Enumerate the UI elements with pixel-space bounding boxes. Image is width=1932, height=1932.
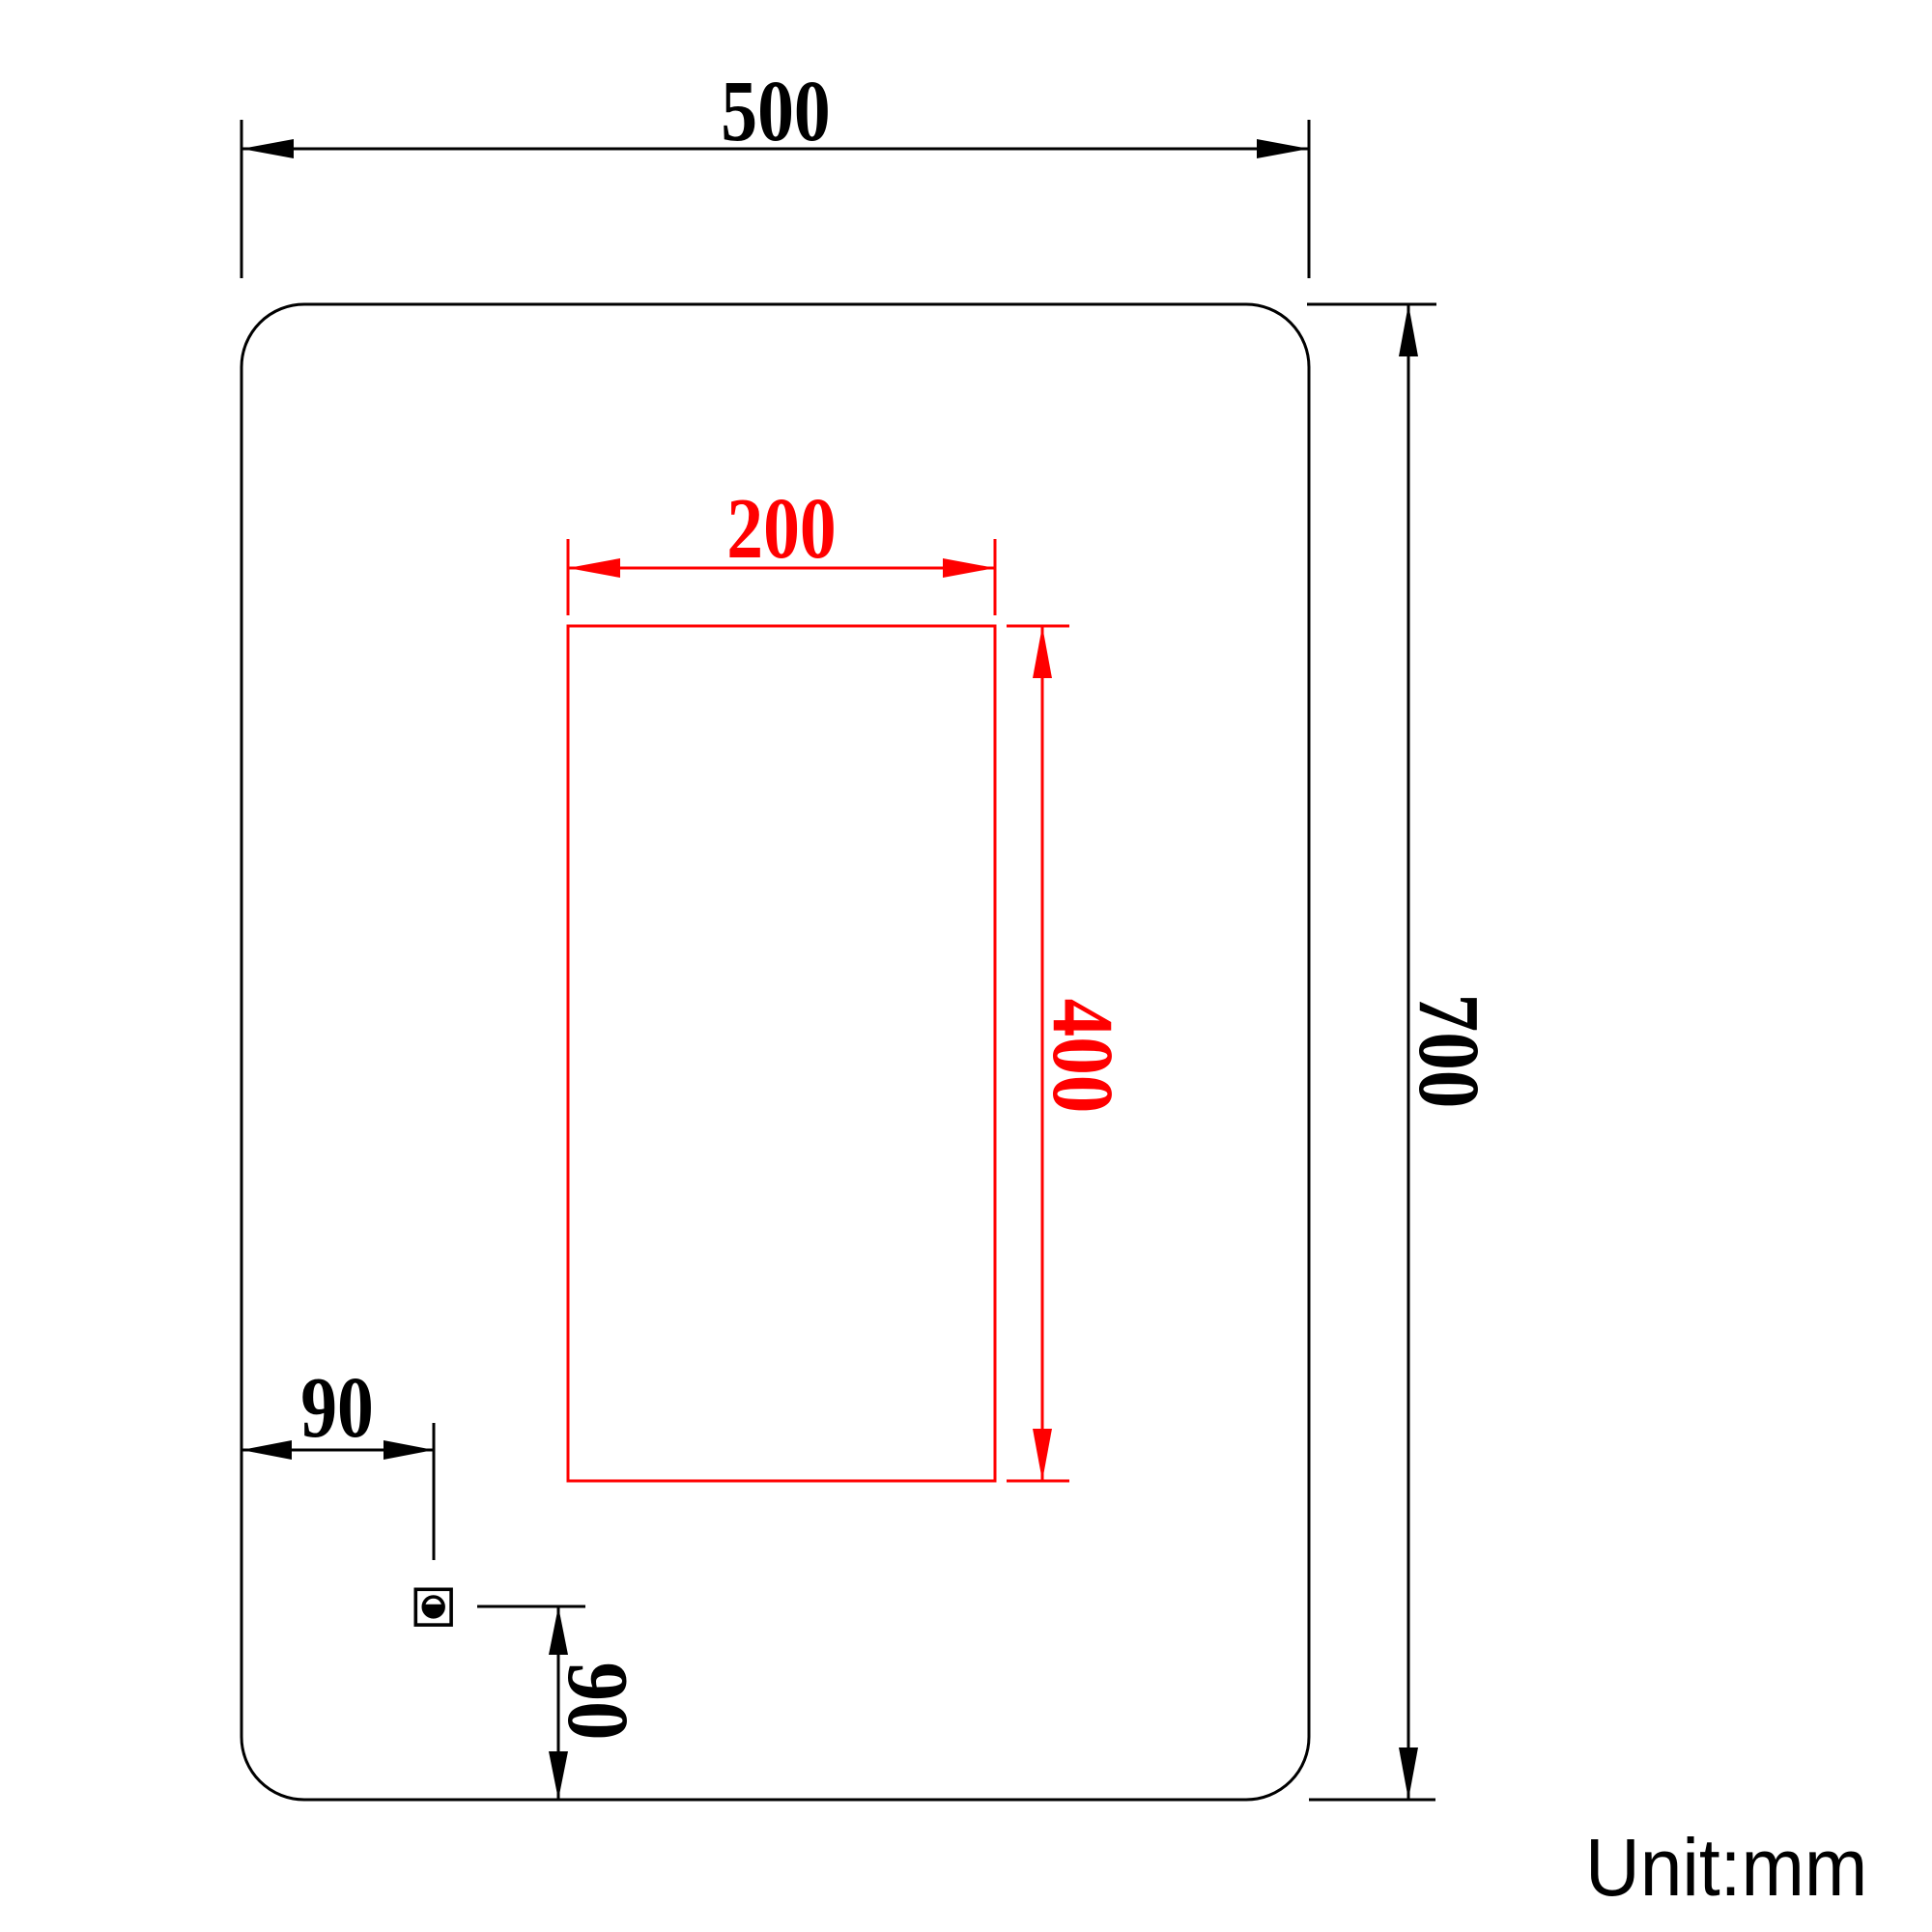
svg-text:90: 90 <box>550 1662 646 1741</box>
svg-text:200: 200 <box>726 480 836 577</box>
svg-text:500: 500 <box>721 63 830 159</box>
svg-text:90: 90 <box>300 1359 374 1456</box>
svg-text:Unit:mm: Unit:mm <box>1585 1823 1867 1914</box>
svg-text:400: 400 <box>1035 999 1131 1114</box>
svg-text:700: 700 <box>1401 994 1497 1109</box>
